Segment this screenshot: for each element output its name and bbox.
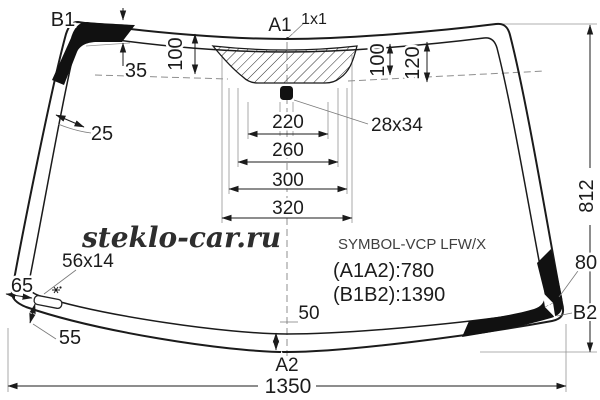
part-dim-a: (A1A2):780 <box>333 260 434 282</box>
mirror-mount <box>280 86 293 100</box>
a1-point <box>286 37 289 40</box>
dim-edge-left: 25 <box>91 123 113 145</box>
dim-sticker: 56x14 <box>62 251 114 272</box>
dim-left-gap: 55 <box>59 327 81 349</box>
point-size-label: 1x1 <box>301 11 327 28</box>
part-model: SYMBOL-VCP LFW/X <box>338 236 486 253</box>
shade-level-left-dashed <box>95 75 228 79</box>
dim-w320: 320 <box>272 198 304 219</box>
dim-w220: 220 <box>272 112 304 133</box>
dim-depth-outer: 120 <box>402 46 424 79</box>
dim-corner: 65 <box>11 275 33 297</box>
dim-band-top: 35 <box>125 60 147 82</box>
part-dim-b: (B1B2):1390 <box>333 284 445 306</box>
dim-depth-left: 100 <box>165 37 187 70</box>
reference-dashed-lines <box>95 42 545 356</box>
band-bottom-right <box>462 249 563 337</box>
part-info: SYMBOL-VCP LFW/X (A1A2):780 (B1B2):1390 <box>333 236 486 306</box>
shade-band-hatch <box>213 46 357 83</box>
shade-band <box>213 46 357 100</box>
sticker-window-rect <box>33 295 62 309</box>
dim-depth-right: 100 <box>367 43 389 76</box>
dim-width: 1350 <box>265 375 312 398</box>
dim-mount: 28x34 <box>371 115 423 136</box>
marker-a1: A1 <box>268 15 291 36</box>
windshield-diagram: B1 A1 1x1 35 100 100 120 812 25 28x34 22… <box>0 0 600 400</box>
watermark: steklo-car.ru <box>81 221 281 254</box>
marker-b2: B2 <box>573 302 597 324</box>
dim-w300: 300 <box>272 170 304 191</box>
sticker-window <box>33 286 62 309</box>
dim-w260: 260 <box>272 140 304 161</box>
dim-height: 812 <box>576 179 598 212</box>
marker-b1: B1 <box>51 9 75 31</box>
dim-center-gap: 50 <box>298 303 319 324</box>
dim-band-right: 80 <box>575 252 597 274</box>
diagram-canvas: B1 A1 1x1 35 100 100 120 812 25 28x34 22… <box>0 0 600 400</box>
marker-a2: A2 <box>275 355 298 376</box>
